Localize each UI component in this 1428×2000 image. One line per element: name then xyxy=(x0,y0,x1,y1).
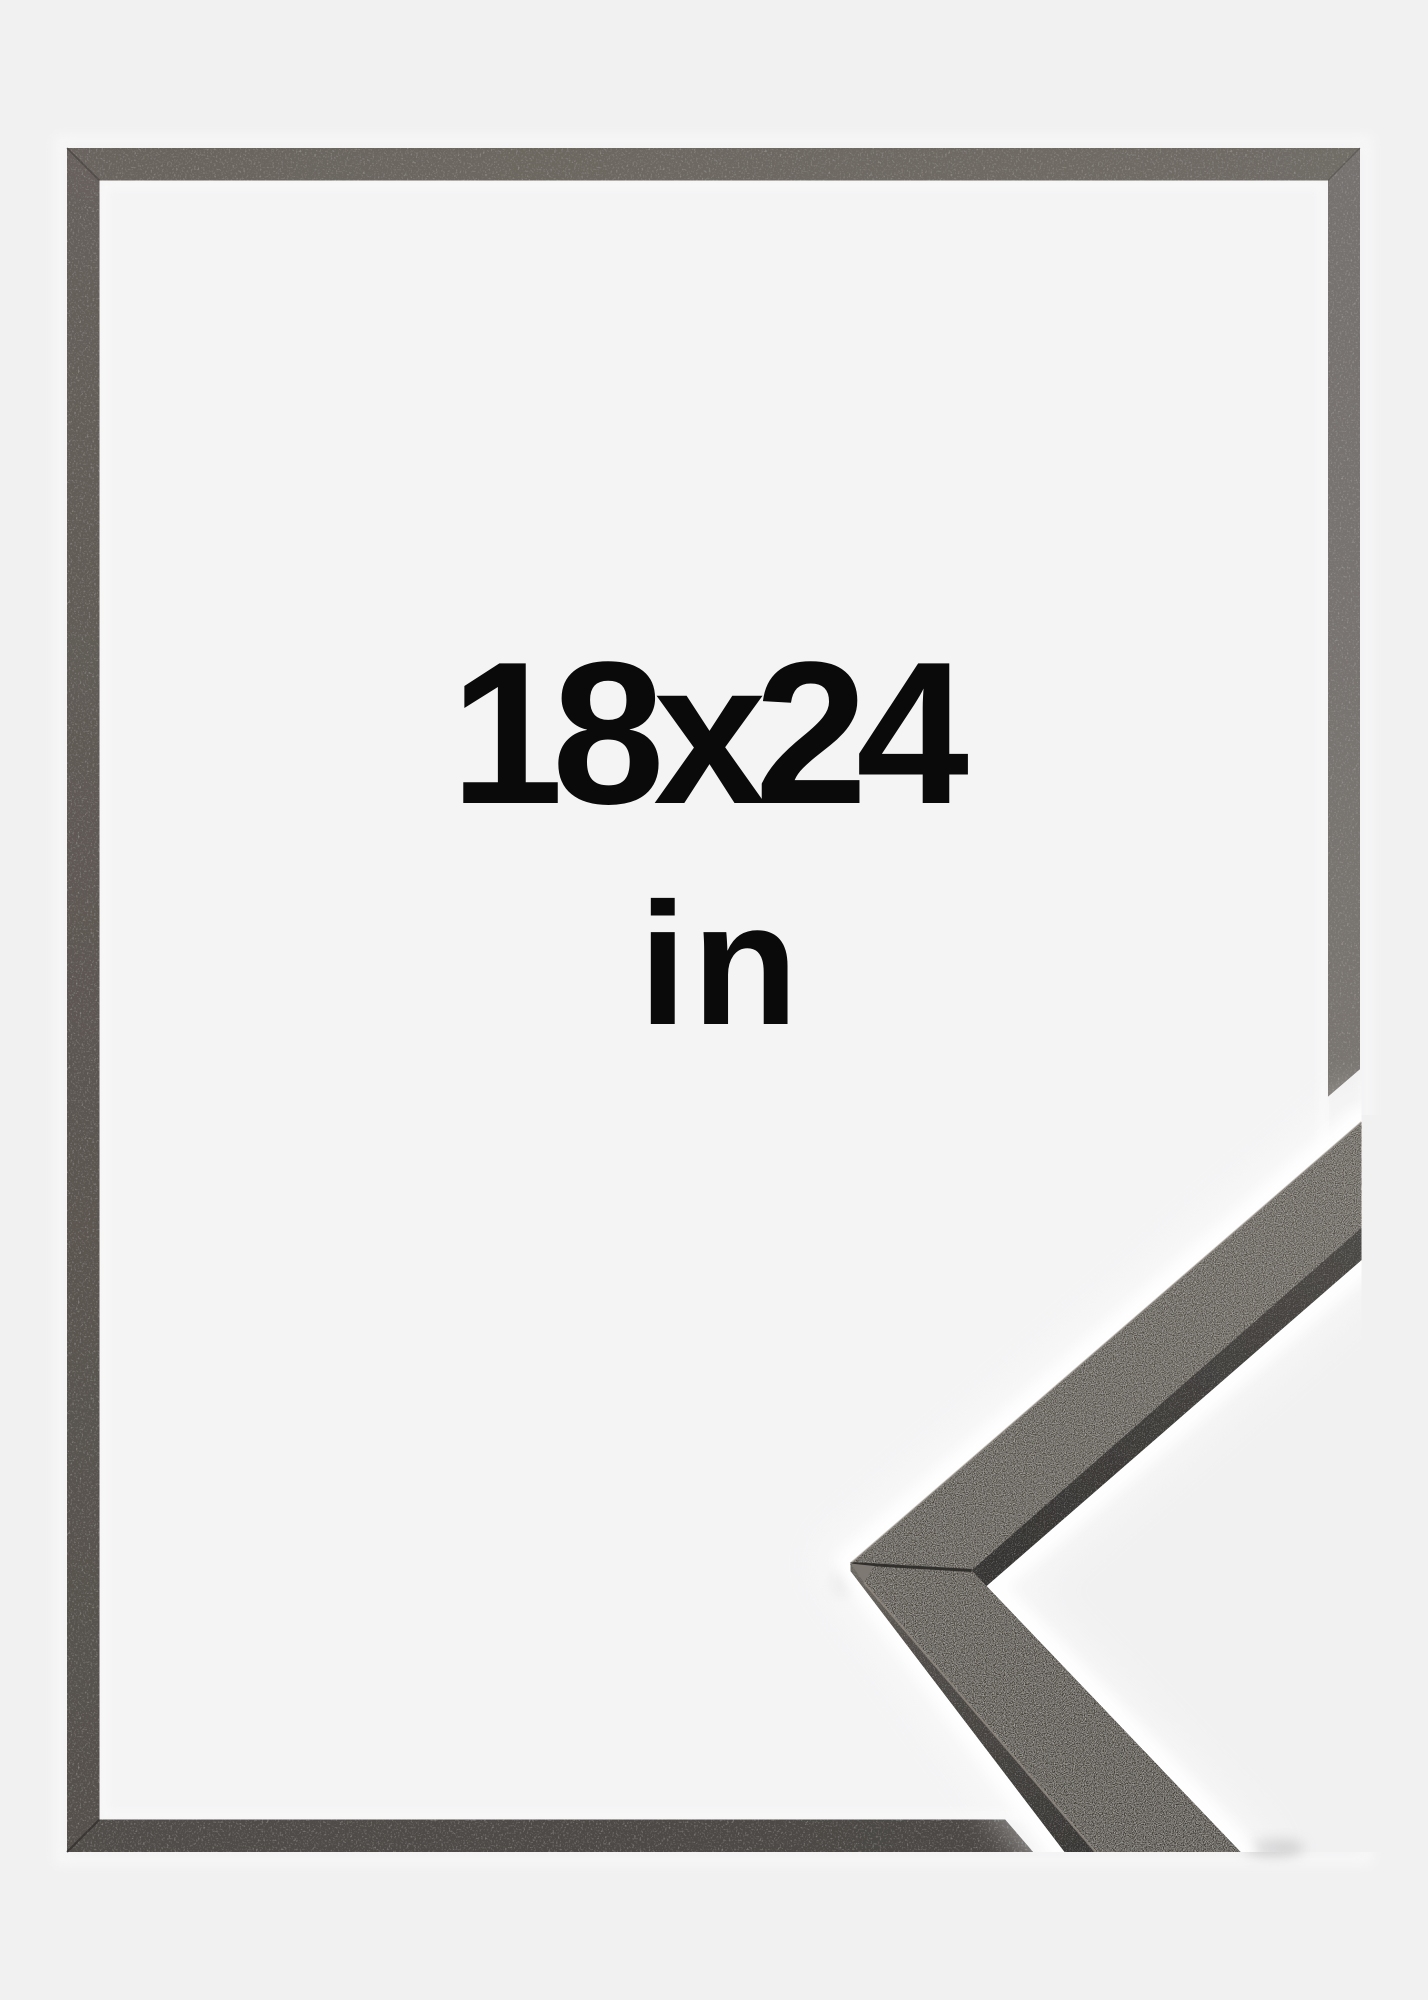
svg-text:18x24: 18x24 xyxy=(451,620,969,847)
svg-text:in: in xyxy=(639,866,804,1061)
